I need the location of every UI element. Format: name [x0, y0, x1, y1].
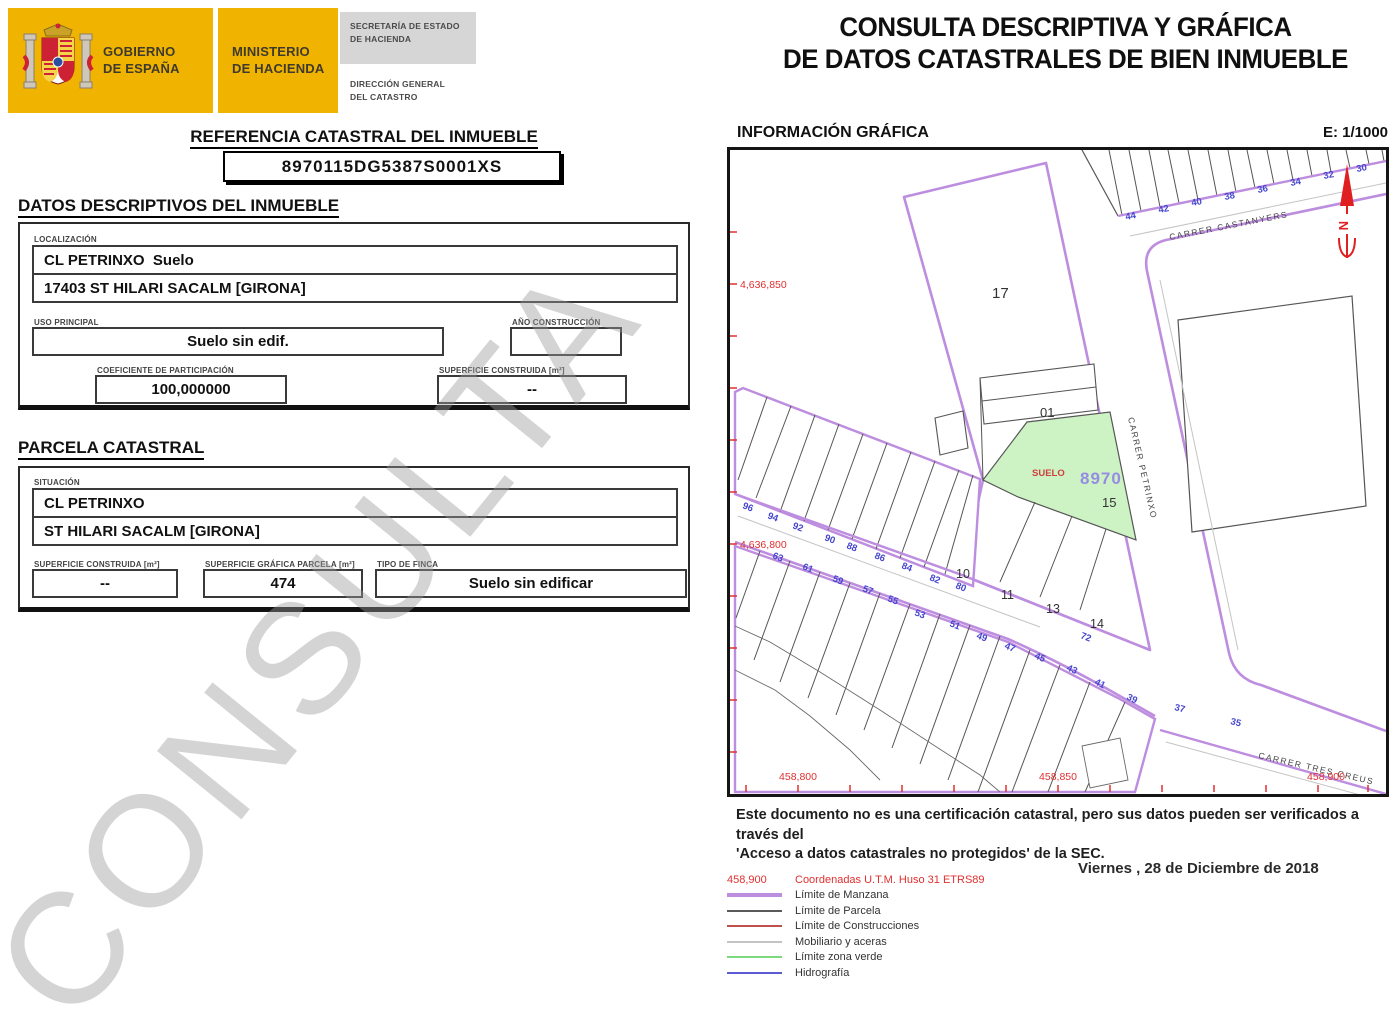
anio-construccion-label: AÑO CONSTRUCCIÓN: [512, 318, 601, 327]
coord-y-2: 4,636,800: [740, 539, 787, 551]
parcel-label-13: 13: [1046, 602, 1060, 616]
legend-item-zona-verde: Límite zona verde: [727, 950, 1147, 966]
parcela-panel: SITUACIÓN CL PETRINXO ST HILARI SACALM […: [18, 466, 690, 612]
uso-principal-label: USO PRINCIPAL: [34, 318, 99, 327]
parcel-label-17: 17: [992, 285, 1009, 302]
superficie-construida-label: SUPERFICIE CONSTRUIDA [m²]: [439, 366, 565, 375]
parcel-label-10: 10: [956, 567, 970, 581]
government-logo-band: GOBIERNO DE ESPAÑA MINISTERIO DE HACIEND…: [8, 8, 338, 113]
direccion-catastro-box: DIRECCIÓN GENERAL DEL CATASTRO: [350, 78, 445, 104]
building-outline: [1178, 296, 1366, 532]
situacion-line1: CL PETRINXO: [32, 488, 678, 518]
secretaria-estado-label: SECRETARÍA DE ESTADO DE HACIENDA: [350, 20, 476, 46]
ministerio-hacienda-label: MINISTERIO DE HACIENDA: [232, 44, 324, 77]
parcel-label-15: 15: [1102, 495, 1116, 510]
tipo-finca-value: Suelo sin edificar: [375, 569, 687, 598]
datos-panel: LOCALIZACIÓN CL PETRINXO Suelo 17403 ST …: [18, 222, 690, 410]
coord-x-2: 458,850: [1039, 771, 1077, 783]
legend-item-hidrografia: Hidrografía: [727, 965, 1147, 981]
datos-heading: DATOS DESCRIPTIVOS DEL INMUEBLE: [18, 196, 339, 216]
legend-line-zona-verde: [727, 956, 782, 958]
anio-construccion-value: [510, 327, 622, 356]
legend-line-construcciones: [727, 925, 782, 927]
uso-principal-value: Suelo sin edif.: [32, 327, 444, 356]
coord-x-1: 458,800: [779, 771, 817, 783]
svg-text:30: 30: [1355, 162, 1367, 175]
svg-text:32: 32: [1322, 169, 1334, 182]
disclaimer-line1: Este documento no es una certificación c…: [736, 806, 1392, 845]
legend-line-mobiliario: [727, 941, 782, 943]
coeficiente-value: 100,000000: [95, 375, 287, 404]
svg-text:38: 38: [1223, 190, 1235, 203]
disclaimer-text: Este documento no es una certificación c…: [736, 806, 1392, 865]
legend-coords-label: Coordenadas U.T.M. Huso 31 ETRS89: [795, 874, 985, 886]
parcel-label-14: 14: [1090, 617, 1104, 631]
parcel-ref-label: 8970: [1080, 469, 1122, 488]
legend-coords-sample: 458,900: [727, 874, 782, 886]
coord-y-1: 4,636,850: [740, 279, 787, 291]
spain-coat-of-arms-icon: [22, 22, 94, 105]
localizacion-line2: 17403 ST HILARI SACALM [GIRONA]: [32, 273, 678, 303]
situacion-line2: ST HILARI SACALM [GIRONA]: [32, 516, 678, 546]
svg-text:42: 42: [1157, 203, 1169, 216]
informacion-grafica-heading: INFORMACIÓN GRÁFICA: [737, 124, 929, 142]
cadastral-map-svg: CARRER CASTANYERS CARRER PETRINXO CARRER…: [730, 150, 1386, 794]
localizacion-line1: CL PETRINXO Suelo: [32, 245, 678, 275]
parcela-sup-construida-label: SUPERFICIE CONSTRUIDA [m²]: [34, 560, 160, 569]
legend-item-construcciones: Límite de Construcciones: [727, 919, 1147, 935]
street-furniture-quad: [935, 411, 968, 455]
superficie-construida-value: --: [437, 375, 627, 404]
parcela-heading: PARCELA CATASTRAL: [18, 438, 204, 458]
parcel-label-11: 11: [1001, 588, 1014, 602]
parcela-sup-grafica-value: 474: [203, 569, 363, 598]
suelo-label: SUELO: [1032, 468, 1065, 479]
escala-label: E: 1/1000: [1300, 124, 1388, 141]
legend-item-parcela: Límite de Parcela: [727, 903, 1147, 919]
svg-text:40: 40: [1190, 196, 1202, 209]
document-title-line1: CONSULTA DESCRIPTIVA Y GRÁFICA: [751, 12, 1380, 44]
secretaria-estado-box: SECRETARÍA DE ESTADO DE HACIENDA: [340, 12, 476, 64]
north-label: N: [1336, 221, 1351, 230]
document-date: Viernes , 28 de Diciembre de 2018: [1078, 860, 1319, 877]
cadastral-document-page: GOBIERNO DE ESPAÑA MINISTERIO DE HACIEND…: [0, 0, 1400, 1015]
referencia-value: 8970115DG5387S0001XS: [223, 151, 561, 182]
referencia-heading: REFERENCIA CATASTRAL DEL INMUEBLE: [168, 127, 560, 147]
direccion-catastro-label: DIRECCIÓN GENERAL DEL CATASTRO: [350, 78, 445, 104]
legend-line-parcela: [727, 910, 782, 912]
legend-line-manzana: [727, 893, 782, 897]
coord-x-3: 458,900: [1307, 771, 1345, 783]
cadastral-map: CARRER CASTANYERS CARRER PETRINXO CARRER…: [727, 147, 1389, 797]
situacion-label: SITUACIÓN: [34, 478, 80, 487]
gobierno-espana-label: GOBIERNO DE ESPAÑA: [103, 44, 180, 77]
parcela-sup-construida-value: --: [32, 569, 178, 598]
tipo-finca-label: TIPO DE FINCA: [377, 560, 438, 569]
legend-item-mobiliario: Mobiliario y aceras: [727, 934, 1147, 950]
legend-line-hidrografia: [727, 972, 782, 974]
document-title-line2: DE DATOS CATASTRALES DE BIEN INMUEBLE: [751, 44, 1380, 76]
parcel-label-01: 01: [1040, 405, 1054, 420]
map-legend: 458,900 Coordenadas U.T.M. Huso 31 ETRS8…: [727, 872, 1147, 981]
legend-item-manzana: Límite de Manzana: [727, 888, 1147, 904]
localizacion-label: LOCALIZACIÓN: [34, 235, 97, 244]
parcela-sup-grafica-label: SUPERFICIE GRÁFICA PARCELA [m²]: [205, 560, 355, 569]
svg-text:36: 36: [1256, 183, 1268, 196]
document-title: CONSULTA DESCRIPTIVA Y GRÁFICA DE DATOS …: [751, 12, 1380, 76]
coeficiente-label: COEFICIENTE DE PARTICIPACIÓN: [97, 366, 234, 375]
